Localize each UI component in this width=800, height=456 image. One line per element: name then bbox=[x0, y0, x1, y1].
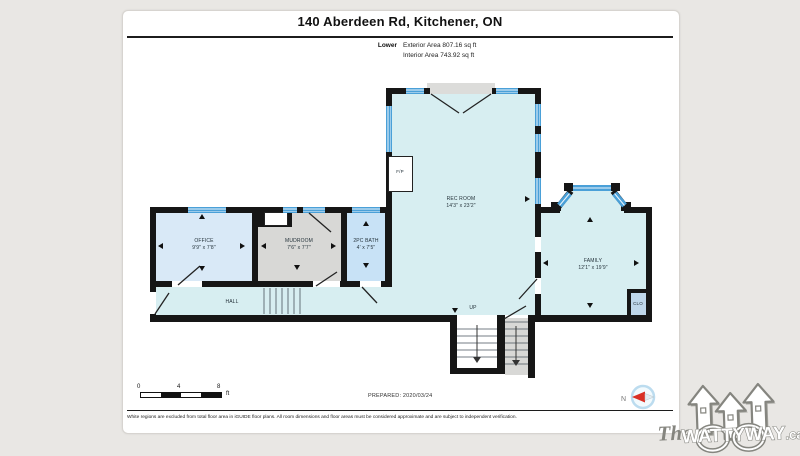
watermark-logo: The WATTYWAY.ca bbox=[655, 378, 800, 455]
room-label-bath: 2PC BATH4' x 7'5" bbox=[345, 238, 387, 253]
dimension-arrow-icon bbox=[587, 303, 593, 308]
dimension-arrow-icon bbox=[587, 217, 593, 222]
dimension-arrow-icon bbox=[543, 260, 548, 266]
dimension-arrow-icon bbox=[363, 263, 369, 268]
watermark-brand: WATTYWAY.ca bbox=[681, 421, 800, 446]
dimension-arrow-icon bbox=[158, 243, 163, 249]
room-label-office: OFFICE9'9" x 7'8" bbox=[174, 238, 234, 253]
fireplace-label: F/P bbox=[389, 169, 411, 176]
dimension-arrow-icon bbox=[525, 196, 530, 202]
room-label-mudroom: MUDROOM7'6" x 7'7" bbox=[269, 238, 329, 253]
dimension-arrow-icon bbox=[261, 243, 266, 249]
dimension-arrow-icon bbox=[199, 214, 205, 219]
dimension-arrow-icon bbox=[634, 260, 639, 266]
room-label-rec: REC ROOM14'3" x 23'2" bbox=[421, 196, 501, 211]
dimension-arrow-icon bbox=[363, 221, 369, 226]
room-label-hall: HALL bbox=[210, 299, 254, 306]
room-label-closet: CLO bbox=[628, 301, 648, 308]
dimension-arrow-icon bbox=[199, 266, 205, 271]
stairs-up-label: UP bbox=[462, 305, 484, 312]
room-label-family: FAMILY12'1" x 19'9" bbox=[553, 258, 633, 273]
dimension-arrow-icon bbox=[294, 265, 300, 270]
dimension-arrow-icon bbox=[331, 243, 336, 249]
floor-plan-page: { "header": { "title": "140 Aberdeen Rd,… bbox=[0, 0, 800, 450]
dimension-arrow-icon bbox=[240, 243, 245, 249]
